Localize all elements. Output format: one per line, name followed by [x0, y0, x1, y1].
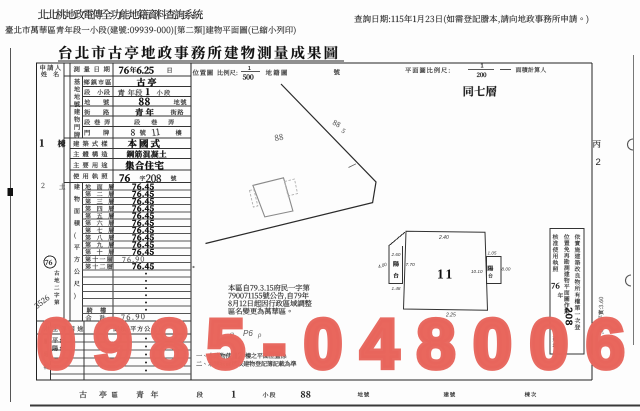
svg-text:2.60: 2.60	[391, 252, 401, 257]
svg-text:2.40: 2.40	[438, 235, 449, 241]
svg-text:1.48: 1.48	[392, 286, 401, 291]
svg-text:7.70: 7.70	[406, 262, 416, 268]
svg-text:1.05: 1.05	[488, 251, 497, 256]
svg-text:10.10: 10.10	[471, 269, 483, 274]
svg-text:1: 1	[248, 66, 251, 72]
svg-text:11: 11	[437, 267, 455, 282]
svg-text:1: 1	[481, 64, 484, 70]
svg-text:8.00: 8.00	[502, 267, 511, 272]
svg-text:4.00: 4.00	[377, 262, 387, 270]
svg-text:2: 2	[596, 157, 601, 168]
